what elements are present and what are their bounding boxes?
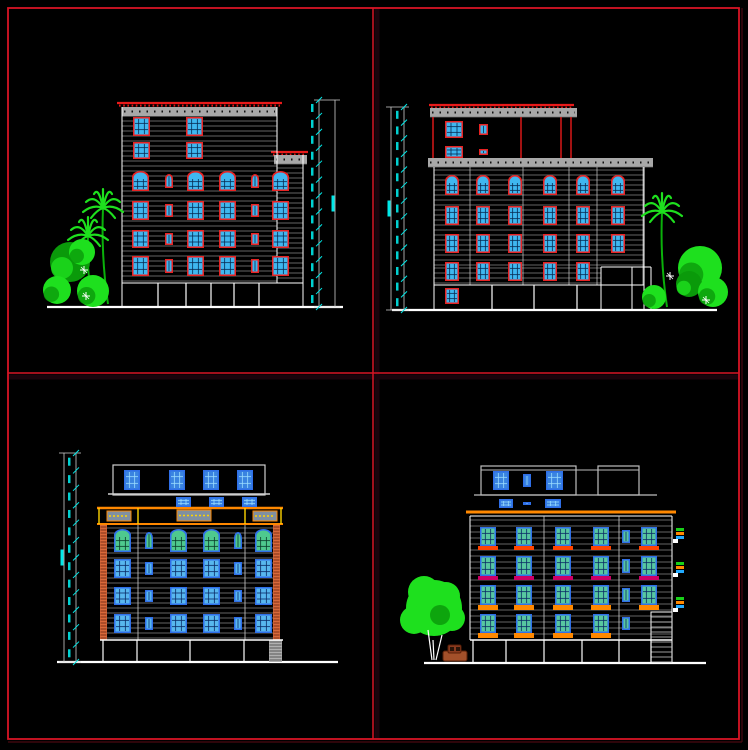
window bbox=[523, 502, 531, 505]
window-pane bbox=[518, 558, 531, 575]
window-pane bbox=[134, 173, 148, 190]
roof-cornice bbox=[117, 103, 282, 116]
dimension-value-text bbox=[396, 251, 399, 259]
window bbox=[165, 233, 173, 245]
stair-outline bbox=[651, 612, 672, 663]
bush bbox=[642, 285, 666, 309]
window bbox=[219, 230, 236, 248]
window-sill bbox=[553, 605, 573, 610]
window-sill bbox=[553, 633, 573, 638]
window-pane bbox=[116, 561, 130, 577]
window bbox=[251, 204, 259, 217]
window bbox=[591, 556, 611, 580]
window bbox=[622, 559, 630, 573]
window-pane bbox=[495, 473, 508, 489]
callout-leader bbox=[673, 573, 678, 577]
dimension-value-text bbox=[396, 220, 399, 228]
window bbox=[478, 614, 498, 638]
dimension-value-text bbox=[68, 527, 71, 535]
callout-chip bbox=[676, 605, 684, 608]
canopy-panel bbox=[177, 510, 211, 521]
window bbox=[170, 587, 187, 605]
window bbox=[576, 262, 590, 281]
bush bbox=[43, 276, 71, 304]
window bbox=[145, 562, 153, 575]
window bbox=[203, 529, 220, 552]
window bbox=[255, 587, 272, 605]
window bbox=[576, 234, 590, 253]
dimension-value-text bbox=[311, 184, 314, 192]
window bbox=[203, 559, 220, 578]
dimension-total-text bbox=[332, 196, 335, 212]
window bbox=[639, 527, 659, 550]
window bbox=[186, 117, 203, 136]
window bbox=[591, 527, 611, 550]
dimension-total-text bbox=[61, 550, 64, 566]
window-row bbox=[133, 142, 203, 159]
window-pane bbox=[545, 177, 556, 194]
window-pane bbox=[482, 558, 495, 575]
window bbox=[622, 530, 630, 543]
car-window bbox=[450, 647, 454, 651]
window-row bbox=[478, 614, 630, 638]
window-pane bbox=[478, 177, 489, 194]
window bbox=[476, 262, 490, 281]
window-pane bbox=[447, 290, 458, 303]
window-pane bbox=[188, 119, 202, 135]
elevation-bottom-right bbox=[400, 466, 706, 663]
window-pane bbox=[171, 472, 184, 489]
window-pane bbox=[178, 499, 190, 506]
window-pane bbox=[613, 236, 624, 252]
callout-chip bbox=[676, 597, 684, 600]
dimension-value-text bbox=[311, 231, 314, 239]
palm-frond bbox=[650, 212, 662, 222]
window-pane bbox=[126, 472, 139, 489]
window-pane bbox=[643, 587, 656, 604]
window-pane bbox=[595, 529, 608, 545]
window-pane bbox=[545, 264, 556, 280]
window-row bbox=[493, 471, 563, 490]
window bbox=[251, 259, 259, 273]
bush-shade bbox=[70, 249, 84, 263]
roof-cornice bbox=[428, 158, 653, 167]
window-pane bbox=[221, 203, 235, 219]
dimension-value-text bbox=[68, 510, 71, 518]
window-pane bbox=[478, 264, 489, 280]
window bbox=[132, 171, 149, 191]
window-row bbox=[478, 527, 659, 550]
window-pane bbox=[188, 144, 202, 158]
parapet-band bbox=[428, 158, 653, 167]
window-pane bbox=[447, 208, 458, 224]
window-pane bbox=[510, 177, 521, 194]
window-pane bbox=[557, 529, 570, 545]
window bbox=[114, 559, 131, 578]
window-pane bbox=[189, 258, 203, 275]
window bbox=[546, 471, 563, 490]
window-pane bbox=[239, 472, 252, 489]
window bbox=[132, 230, 149, 248]
window-row bbox=[132, 201, 289, 220]
ground-floor-columns bbox=[492, 285, 577, 310]
material-callout bbox=[673, 562, 684, 577]
window bbox=[476, 234, 490, 253]
window-pane bbox=[557, 587, 570, 604]
dimension-value-text bbox=[68, 562, 71, 570]
window-pane bbox=[244, 499, 256, 506]
window bbox=[219, 171, 236, 191]
window-pane bbox=[274, 173, 288, 190]
window-pane bbox=[274, 258, 288, 275]
window bbox=[508, 234, 522, 253]
tree-branch bbox=[436, 635, 442, 660]
window bbox=[187, 201, 204, 220]
elevation-sheet-canvas bbox=[0, 0, 748, 750]
window-pane bbox=[205, 472, 218, 489]
panel-frame bbox=[177, 510, 211, 521]
window-pane bbox=[221, 173, 235, 190]
window bbox=[611, 175, 625, 195]
window-pane bbox=[478, 236, 489, 252]
bush bbox=[698, 277, 728, 307]
window bbox=[114, 587, 131, 605]
window-pane bbox=[501, 501, 512, 507]
window-pane bbox=[257, 589, 271, 604]
window-row bbox=[133, 117, 203, 136]
window bbox=[514, 556, 534, 580]
window bbox=[478, 527, 498, 550]
roof-cornice bbox=[429, 105, 577, 117]
window bbox=[272, 230, 289, 248]
window bbox=[255, 529, 272, 552]
dimension-value-text bbox=[396, 298, 399, 306]
window bbox=[479, 124, 488, 135]
window bbox=[187, 171, 204, 191]
window-row bbox=[445, 146, 488, 158]
window-pane bbox=[172, 616, 186, 632]
dimension-value-text bbox=[311, 215, 314, 223]
dimension-chain bbox=[386, 104, 409, 313]
window-pane bbox=[613, 208, 624, 224]
window-pane bbox=[135, 144, 149, 158]
window-sill bbox=[478, 576, 498, 580]
window-pane bbox=[447, 177, 458, 194]
window-sill bbox=[478, 605, 498, 610]
window-pane bbox=[545, 208, 556, 224]
callout-chip bbox=[676, 532, 684, 535]
material-callout bbox=[673, 597, 684, 612]
callout-leader bbox=[673, 608, 678, 612]
window-row bbox=[478, 585, 659, 610]
window-pane bbox=[447, 236, 458, 252]
dimension-value-text bbox=[68, 545, 71, 553]
window bbox=[209, 497, 224, 507]
elevation-top-left bbox=[43, 97, 343, 310]
window bbox=[186, 142, 203, 159]
window-pane bbox=[557, 616, 570, 632]
palm-frond bbox=[91, 208, 103, 218]
stair-annex bbox=[651, 612, 672, 663]
window-pane bbox=[478, 208, 489, 224]
window bbox=[445, 262, 459, 281]
window-pane bbox=[547, 501, 560, 507]
window bbox=[508, 206, 522, 225]
window bbox=[445, 234, 459, 253]
window bbox=[622, 617, 630, 630]
window-row bbox=[445, 206, 625, 225]
window-pane bbox=[221, 232, 235, 247]
parapet-band bbox=[274, 155, 307, 164]
window bbox=[165, 204, 173, 217]
window bbox=[553, 527, 573, 550]
window bbox=[543, 234, 557, 253]
window-sill bbox=[639, 605, 659, 610]
window bbox=[478, 585, 498, 610]
window-sill bbox=[639, 576, 659, 580]
dimension-value-text bbox=[311, 152, 314, 160]
window-pane bbox=[578, 236, 589, 252]
window bbox=[543, 262, 557, 281]
window bbox=[476, 206, 490, 225]
callout-chip bbox=[676, 601, 684, 604]
dimension-value-text bbox=[68, 580, 71, 588]
window bbox=[514, 585, 534, 610]
window bbox=[145, 532, 153, 549]
window-sill bbox=[514, 546, 534, 550]
window-pane bbox=[447, 123, 462, 137]
window-sill bbox=[478, 633, 498, 638]
window bbox=[478, 556, 498, 580]
callout-chip bbox=[676, 566, 684, 569]
window bbox=[591, 614, 611, 638]
window-pane bbox=[205, 589, 219, 604]
window-pane bbox=[578, 208, 589, 224]
window-pane bbox=[510, 236, 521, 252]
window bbox=[514, 527, 534, 550]
tree-trunk bbox=[433, 640, 434, 660]
dimension-value-text bbox=[68, 649, 71, 657]
ground-floor-columns bbox=[103, 640, 244, 662]
window-row bbox=[176, 497, 257, 507]
dimension-value-text bbox=[311, 168, 314, 176]
window bbox=[545, 499, 561, 508]
dimension-value-text bbox=[311, 200, 314, 208]
dimension-chain bbox=[59, 450, 81, 665]
dimension-value-text bbox=[68, 614, 71, 622]
dimension-value-text bbox=[311, 136, 314, 144]
window bbox=[553, 556, 573, 580]
cad-viewport bbox=[0, 0, 748, 750]
window bbox=[234, 562, 242, 575]
window-sill bbox=[553, 576, 573, 580]
window-pane bbox=[172, 589, 186, 604]
window-pane bbox=[172, 561, 186, 577]
window-pane bbox=[447, 148, 462, 157]
window-sill bbox=[514, 633, 534, 638]
bush-shade bbox=[51, 257, 73, 279]
window bbox=[133, 117, 150, 136]
window bbox=[508, 262, 522, 281]
dimension-value-text bbox=[68, 475, 71, 483]
window-sill bbox=[639, 546, 659, 550]
window-pane bbox=[221, 258, 235, 275]
window-pane bbox=[595, 587, 608, 604]
car-window bbox=[456, 647, 460, 651]
window-pane bbox=[613, 177, 624, 194]
window-pane bbox=[578, 264, 589, 280]
window bbox=[445, 288, 459, 304]
window bbox=[251, 174, 259, 188]
dimension-value-text bbox=[396, 111, 399, 119]
window bbox=[445, 206, 459, 225]
dimension-value-text bbox=[311, 279, 314, 287]
dimension-value-text bbox=[396, 142, 399, 150]
window-pane bbox=[205, 561, 219, 577]
window bbox=[169, 470, 185, 490]
window bbox=[543, 206, 557, 225]
dimension-value-text bbox=[68, 493, 71, 501]
window-pane bbox=[116, 589, 130, 604]
tree-shade bbox=[430, 605, 450, 625]
window bbox=[272, 201, 289, 220]
window bbox=[165, 174, 173, 188]
window-pane bbox=[545, 236, 556, 252]
window bbox=[445, 175, 459, 195]
bush bbox=[77, 275, 109, 307]
window bbox=[114, 614, 131, 633]
window bbox=[272, 256, 289, 276]
parapet-band bbox=[430, 108, 577, 117]
window bbox=[523, 474, 531, 487]
dimension-value-text bbox=[396, 158, 399, 166]
window bbox=[145, 590, 153, 602]
window-pane bbox=[134, 232, 148, 247]
window bbox=[514, 614, 534, 638]
car bbox=[443, 645, 467, 661]
window-pane bbox=[518, 616, 531, 632]
callout-chip bbox=[676, 562, 684, 565]
window-pane bbox=[205, 616, 219, 632]
dimension-value-text bbox=[396, 267, 399, 275]
window bbox=[237, 470, 253, 490]
window-pane bbox=[189, 203, 203, 219]
window bbox=[132, 256, 149, 276]
window-row bbox=[499, 499, 561, 508]
window bbox=[639, 585, 659, 610]
bush-shade bbox=[677, 281, 691, 295]
window bbox=[576, 175, 590, 195]
window bbox=[622, 588, 630, 602]
window-pane bbox=[134, 203, 148, 219]
window bbox=[187, 230, 204, 248]
window bbox=[479, 149, 488, 155]
dimension-value-text bbox=[396, 173, 399, 181]
window bbox=[445, 146, 463, 158]
palm-frond bbox=[103, 208, 115, 218]
window bbox=[187, 256, 204, 276]
window bbox=[124, 470, 140, 490]
window-pane bbox=[548, 473, 562, 489]
window bbox=[576, 206, 590, 225]
callout-chip bbox=[676, 570, 684, 573]
window bbox=[234, 532, 242, 549]
window-sill bbox=[591, 546, 611, 550]
window bbox=[272, 171, 289, 191]
window-pane bbox=[510, 208, 521, 224]
window-row bbox=[445, 288, 459, 304]
window-sill bbox=[514, 605, 534, 610]
material-callout bbox=[673, 528, 684, 543]
dimension-value-text bbox=[68, 458, 71, 466]
canopy-panel bbox=[107, 511, 131, 521]
elevation-bottom-left bbox=[57, 450, 338, 665]
window bbox=[611, 234, 625, 253]
window bbox=[219, 201, 236, 220]
wall-siding bbox=[107, 528, 273, 638]
window bbox=[508, 175, 522, 195]
palm-frond bbox=[662, 212, 674, 222]
window-pane bbox=[643, 529, 656, 545]
window-pane bbox=[189, 232, 203, 247]
dimension-value-text bbox=[396, 236, 399, 244]
window-sill bbox=[591, 633, 611, 638]
window-pane bbox=[595, 616, 608, 632]
window bbox=[133, 142, 150, 159]
window bbox=[499, 499, 513, 508]
window bbox=[242, 497, 257, 507]
window bbox=[132, 201, 149, 220]
window bbox=[445, 121, 463, 138]
callout-leader bbox=[673, 539, 678, 543]
window bbox=[255, 559, 272, 578]
window-sill bbox=[591, 576, 611, 580]
canopy-panel bbox=[253, 511, 277, 521]
window-pane bbox=[274, 203, 288, 219]
window-row bbox=[132, 230, 289, 248]
bush-shade bbox=[44, 287, 59, 302]
window-pane bbox=[257, 561, 271, 577]
ground-floor-columns bbox=[158, 283, 259, 307]
dimension-value-text bbox=[396, 283, 399, 291]
window bbox=[176, 497, 191, 507]
window-pane bbox=[134, 258, 148, 275]
window bbox=[145, 617, 153, 630]
dimension-value-text bbox=[311, 295, 314, 303]
window-pane bbox=[116, 616, 130, 632]
window-pane bbox=[643, 558, 656, 575]
window bbox=[493, 471, 509, 490]
window-pane bbox=[510, 264, 521, 280]
window bbox=[553, 585, 573, 610]
window bbox=[170, 529, 187, 552]
window-row bbox=[445, 121, 488, 138]
dimension-value-text bbox=[396, 189, 399, 197]
dimension-value-text bbox=[68, 597, 71, 605]
dimension-value-text bbox=[68, 632, 71, 640]
elevation-top-right bbox=[386, 104, 728, 313]
window bbox=[165, 259, 173, 273]
callout-chip bbox=[676, 528, 684, 531]
window-row bbox=[124, 470, 253, 490]
window-pane bbox=[447, 264, 458, 280]
window-sill bbox=[514, 576, 534, 580]
window-pane bbox=[557, 558, 570, 575]
window-pane bbox=[595, 558, 608, 575]
window-pane bbox=[274, 232, 288, 247]
dimension-value-text bbox=[311, 104, 314, 112]
window-pane bbox=[135, 119, 149, 135]
